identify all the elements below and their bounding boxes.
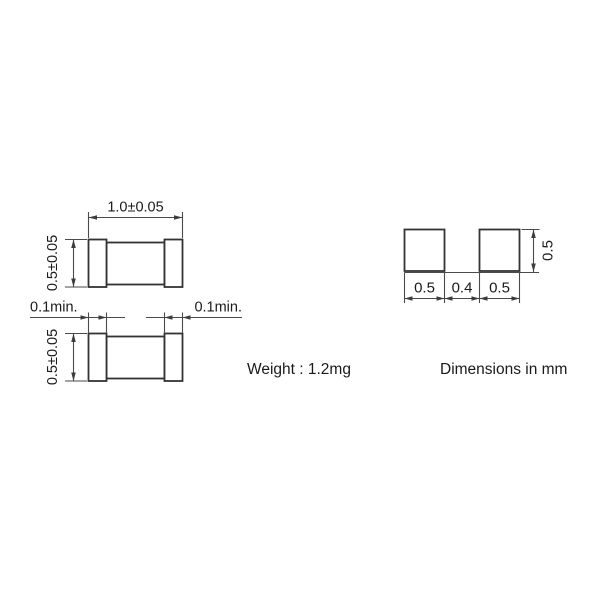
top-view: 1.0±0.05 0.5±0.05 [45, 200, 183, 292]
top-view-left-terminal [89, 240, 107, 288]
dim-bottom-height: 0.5±0.05 [45, 329, 87, 385]
top-view-right-terminal [165, 240, 183, 288]
arrowhead-right [472, 296, 480, 301]
arrowhead-right [81, 315, 89, 320]
dim-top-height: 0.5±0.05 [45, 235, 87, 291]
dim-top-height-label: 0.5±0.05 [45, 235, 61, 291]
pad-right-width-label: 0.5 [489, 280, 510, 297]
land-pad-right [480, 230, 520, 272]
bottom-view-body [107, 337, 165, 379]
arrowhead-up [71, 240, 76, 249]
bottom-view: 0.1min. 0.1min. 0.5±0.05 [30, 300, 242, 386]
dim-pad-widths: 0.5 0.4 0.5 [405, 273, 540, 304]
technical-drawing-canvas: 1.0±0.05 0.5±0.05 0.1min. 0.1min. [0, 0, 600, 600]
dim-termination-left-label: 0.1min. [30, 300, 78, 316]
bottom-view-left-terminal [89, 334, 107, 382]
arrowhead-left [89, 215, 98, 220]
arrowhead-down [71, 373, 76, 382]
arrowhead-left [480, 296, 488, 301]
dim-pad-height: 0.5 [522, 230, 557, 273]
technical-drawing-page: 1.0±0.05 0.5±0.05 0.1min. 0.1min. [0, 0, 600, 600]
top-view-body [107, 243, 165, 285]
arrowhead-down [531, 264, 536, 273]
pad-height-label: 0.5 [540, 240, 557, 261]
dim-termination-right: 0.1min. [146, 300, 242, 333]
units-note: Dimensions in mm [440, 361, 567, 378]
dim-top-length: 1.0±0.05 [89, 200, 183, 239]
dim-top-length-label: 1.0±0.05 [107, 200, 163, 216]
arrowhead-left [445, 296, 453, 301]
dim-termination-left: 0.1min. [30, 300, 125, 333]
arrowhead-right [174, 215, 183, 220]
bottom-view-right-terminal [165, 334, 183, 382]
arrowhead-left [405, 296, 413, 301]
arrowhead-left [165, 315, 173, 320]
pad-gap-label: 0.4 [452, 280, 473, 297]
arrowhead-up [531, 230, 536, 239]
arrowhead-left [183, 315, 191, 320]
weight-note: Weight : 1.2mg [247, 361, 351, 378]
dim-bottom-height-label: 0.5±0.05 [45, 329, 61, 385]
land-pad-left [405, 230, 445, 272]
land-pattern: 0.5 0.4 0.5 0.5 [405, 230, 557, 304]
arrowhead-up [71, 334, 76, 343]
arrowhead-right [437, 296, 445, 301]
dim-termination-right-label: 0.1min. [194, 300, 242, 316]
pad-left-width-label: 0.5 [414, 280, 435, 297]
arrowhead-right [512, 296, 520, 301]
arrowhead-down [71, 279, 76, 288]
arrowhead-right [99, 315, 107, 320]
